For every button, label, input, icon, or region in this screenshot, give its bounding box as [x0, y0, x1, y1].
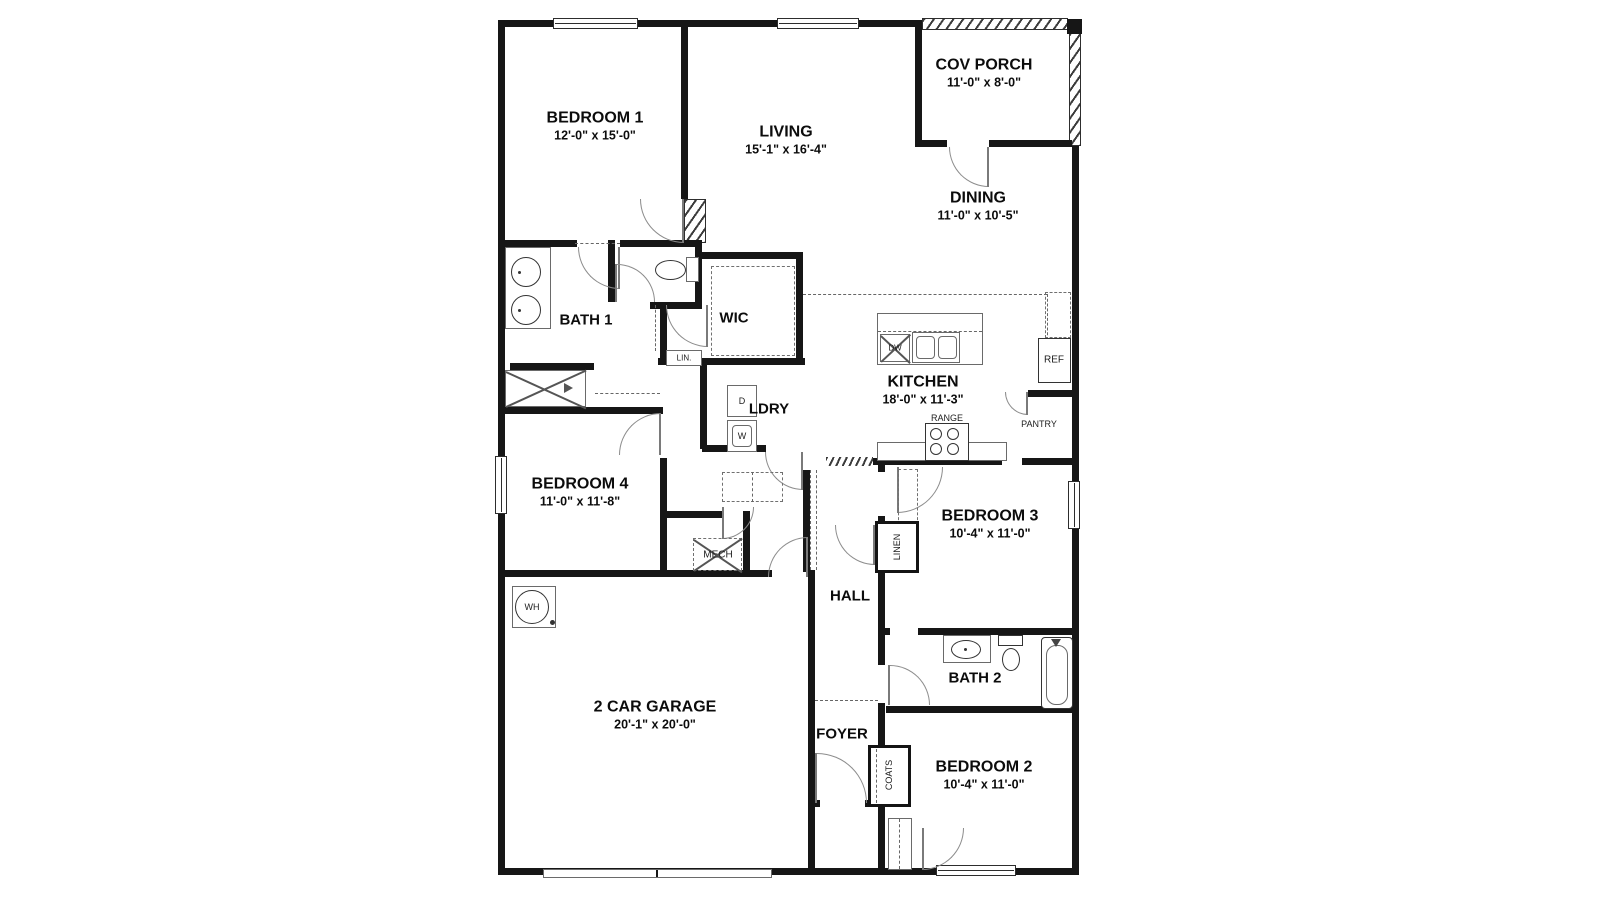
room-label-bath2: BATH 2 [948, 670, 1001, 687]
wall-segment [702, 252, 803, 259]
room-label-garage: 2 CAR GARAGE 20'-1" x 20'-0" [594, 699, 717, 732]
floor-plan: BEDROOM 1 12'-0" x 15'-0" LIVING 15'-1" … [498, 18, 1085, 875]
wall-segment [915, 20, 922, 147]
door-leaf [682, 199, 684, 243]
room-name: COV PORCH [936, 57, 1033, 75]
door-leaf [659, 413, 661, 455]
dryer-label: D [739, 396, 746, 406]
room-name: LIVING [745, 124, 827, 142]
room-dims: 12'-0" x 15'-0" [547, 129, 644, 143]
door-arc [619, 413, 661, 455]
door-leaf [888, 665, 890, 705]
bedroom3-closet [898, 469, 918, 525]
porch-corner-post [1067, 19, 1082, 34]
window [777, 18, 859, 29]
door-jamb-hatch [684, 199, 706, 243]
room-name: FOYER [816, 726, 868, 743]
room-dims: 10'-4" x 11'-0" [942, 527, 1039, 541]
coats-closet-rod [876, 749, 877, 803]
wall-segment [498, 240, 577, 247]
door-leaf [922, 828, 924, 870]
room-name: KITCHEN [882, 374, 963, 392]
mech-label: MECH [703, 550, 732, 561]
faucet-icon [1051, 639, 1061, 647]
sink [511, 257, 541, 287]
room-dims: 20'-1" x 20'-0" [594, 718, 717, 732]
room-name: BATH 1 [559, 312, 612, 329]
attic-access-dash [816, 470, 817, 570]
room-name: LDRY [749, 401, 789, 418]
door-leaf [706, 305, 708, 347]
pantry-label: PANTRY [1021, 419, 1057, 429]
door-leaf [806, 537, 808, 577]
door-arc [640, 199, 684, 243]
wall-segment [918, 628, 1072, 635]
window [495, 456, 507, 514]
wall-segment [660, 511, 724, 518]
shower-head-icon [564, 383, 573, 393]
burner [930, 428, 942, 440]
wall-segment [1022, 458, 1072, 465]
toilet-tank [686, 257, 699, 282]
room-name: WIC [719, 310, 748, 327]
wall-segment [620, 240, 702, 247]
door-arc [578, 247, 620, 289]
sink [511, 295, 541, 325]
window [936, 865, 1016, 876]
room-dims: 10'-4" x 11'-0" [936, 778, 1033, 792]
toilet-bowl [1002, 648, 1020, 671]
toilet-bowl [655, 260, 686, 280]
wall-segment [796, 252, 803, 362]
range-label: RANGE [931, 413, 963, 423]
dw-label: DW [888, 344, 901, 353]
room-label-wic: WIC [719, 310, 748, 327]
door-leaf [815, 753, 817, 803]
sink-drain [518, 271, 521, 274]
room-name: BEDROOM 3 [942, 508, 1039, 526]
room-name: BEDROOM 4 [532, 476, 629, 494]
window [553, 18, 638, 29]
door-arc [768, 537, 808, 577]
door-leaf [987, 147, 989, 187]
room-label-bath1: BATH 1 [559, 312, 612, 329]
washer-label: W [738, 431, 747, 441]
opening-dash [575, 243, 620, 244]
opening-dash [655, 305, 656, 351]
wall-segment [808, 570, 815, 875]
door-arc [817, 753, 867, 803]
room-name: BEDROOM 2 [936, 759, 1033, 777]
sink-bowl [916, 336, 935, 359]
room-dims: 18'-0" x 11'-3" [882, 393, 963, 407]
room-dims: 11'-0" x 10'-5" [937, 209, 1018, 223]
burner [947, 428, 959, 440]
room-label-foyer: FOYER [816, 726, 868, 743]
wall-segment [498, 20, 505, 875]
ref-label: REF [1044, 355, 1064, 366]
wall-segment [915, 140, 947, 147]
room-name: HALL [830, 588, 870, 605]
door-arc [949, 147, 989, 187]
room-label-bedroom1: BEDROOM 1 12'-0" x 15'-0" [547, 110, 644, 143]
bedroom2-closet [888, 818, 912, 870]
door-arc [1005, 392, 1028, 415]
toilet-tank [998, 635, 1023, 646]
porch-hatched-edge [922, 18, 1068, 30]
cased-opening-hatch [826, 457, 873, 466]
room-label-ldry: LDRY [749, 401, 789, 418]
wall-segment [498, 407, 663, 414]
room-label-living: LIVING 15'-1" x 16'-4" [745, 124, 827, 157]
room-label-kitchen: KITCHEN 18'-0" x 11'-3" [882, 374, 963, 407]
foyer-dash [815, 700, 878, 701]
garage-door-divider [656, 870, 658, 877]
bathtub-inner [1046, 645, 1068, 705]
linen-label: LINEN [892, 534, 902, 561]
wall-segment [989, 140, 1072, 147]
door-leaf [722, 507, 724, 539]
room-name: DINING [937, 190, 1018, 208]
sink-bowl [938, 336, 957, 359]
coats-label: COATS [884, 760, 894, 790]
room-dims: 11'-0" x 8'-0" [936, 76, 1033, 90]
door-arc [835, 525, 875, 565]
optional-cabinet-divider [752, 472, 753, 502]
room-label-bedroom3: BEDROOM 3 10'-4" x 11'-0" [942, 508, 1039, 541]
room-dims: 15'-1" x 16'-4" [745, 143, 827, 157]
porch-hatched-edge [1069, 32, 1081, 146]
wh-label: WH [525, 602, 540, 612]
drain-dot [550, 620, 555, 625]
room-label-dining: DINING 11'-0" x 10'-5" [937, 190, 1018, 223]
wall-segment [700, 365, 707, 449]
room-name: 2 CAR GARAGE [594, 699, 717, 717]
room-label-hall: HALL [830, 588, 870, 605]
room-label-bedroom4: BEDROOM 4 11'-0" x 11'-8" [532, 476, 629, 509]
door-arc [666, 305, 708, 347]
room-label-bedroom2: BEDROOM 2 10'-4" x 11'-0" [936, 759, 1033, 792]
burner [930, 443, 942, 455]
wall-segment [510, 363, 594, 370]
wall-segment [878, 571, 885, 665]
door-leaf [801, 452, 803, 490]
door-arc [617, 264, 655, 302]
burner [947, 443, 959, 455]
attic-access-dash [810, 470, 811, 570]
wall-segment [1028, 390, 1072, 397]
cabinet-above-ref [1045, 292, 1071, 338]
sink-drain [518, 309, 521, 312]
room-dims: 11'-0" x 11'-8" [532, 495, 629, 509]
door-leaf [1026, 392, 1028, 415]
room-label-cov-porch: COV PORCH 11'-0" x 8'-0" [936, 57, 1033, 90]
wall-segment [498, 570, 772, 577]
corridor-dash [595, 393, 660, 394]
window [1068, 481, 1080, 529]
room-name: BEDROOM 1 [547, 110, 644, 128]
wall-segment [878, 805, 885, 875]
room-name: BATH 2 [948, 670, 1001, 687]
bedroom2-closet-rod [899, 819, 900, 869]
sink-drain [964, 648, 967, 651]
door-arc [890, 665, 930, 705]
door-arc [922, 828, 964, 870]
wall-segment [681, 20, 688, 199]
lin-label: LIN. [677, 354, 692, 363]
soffit-dash [803, 294, 1047, 295]
door-leaf [615, 264, 617, 302]
